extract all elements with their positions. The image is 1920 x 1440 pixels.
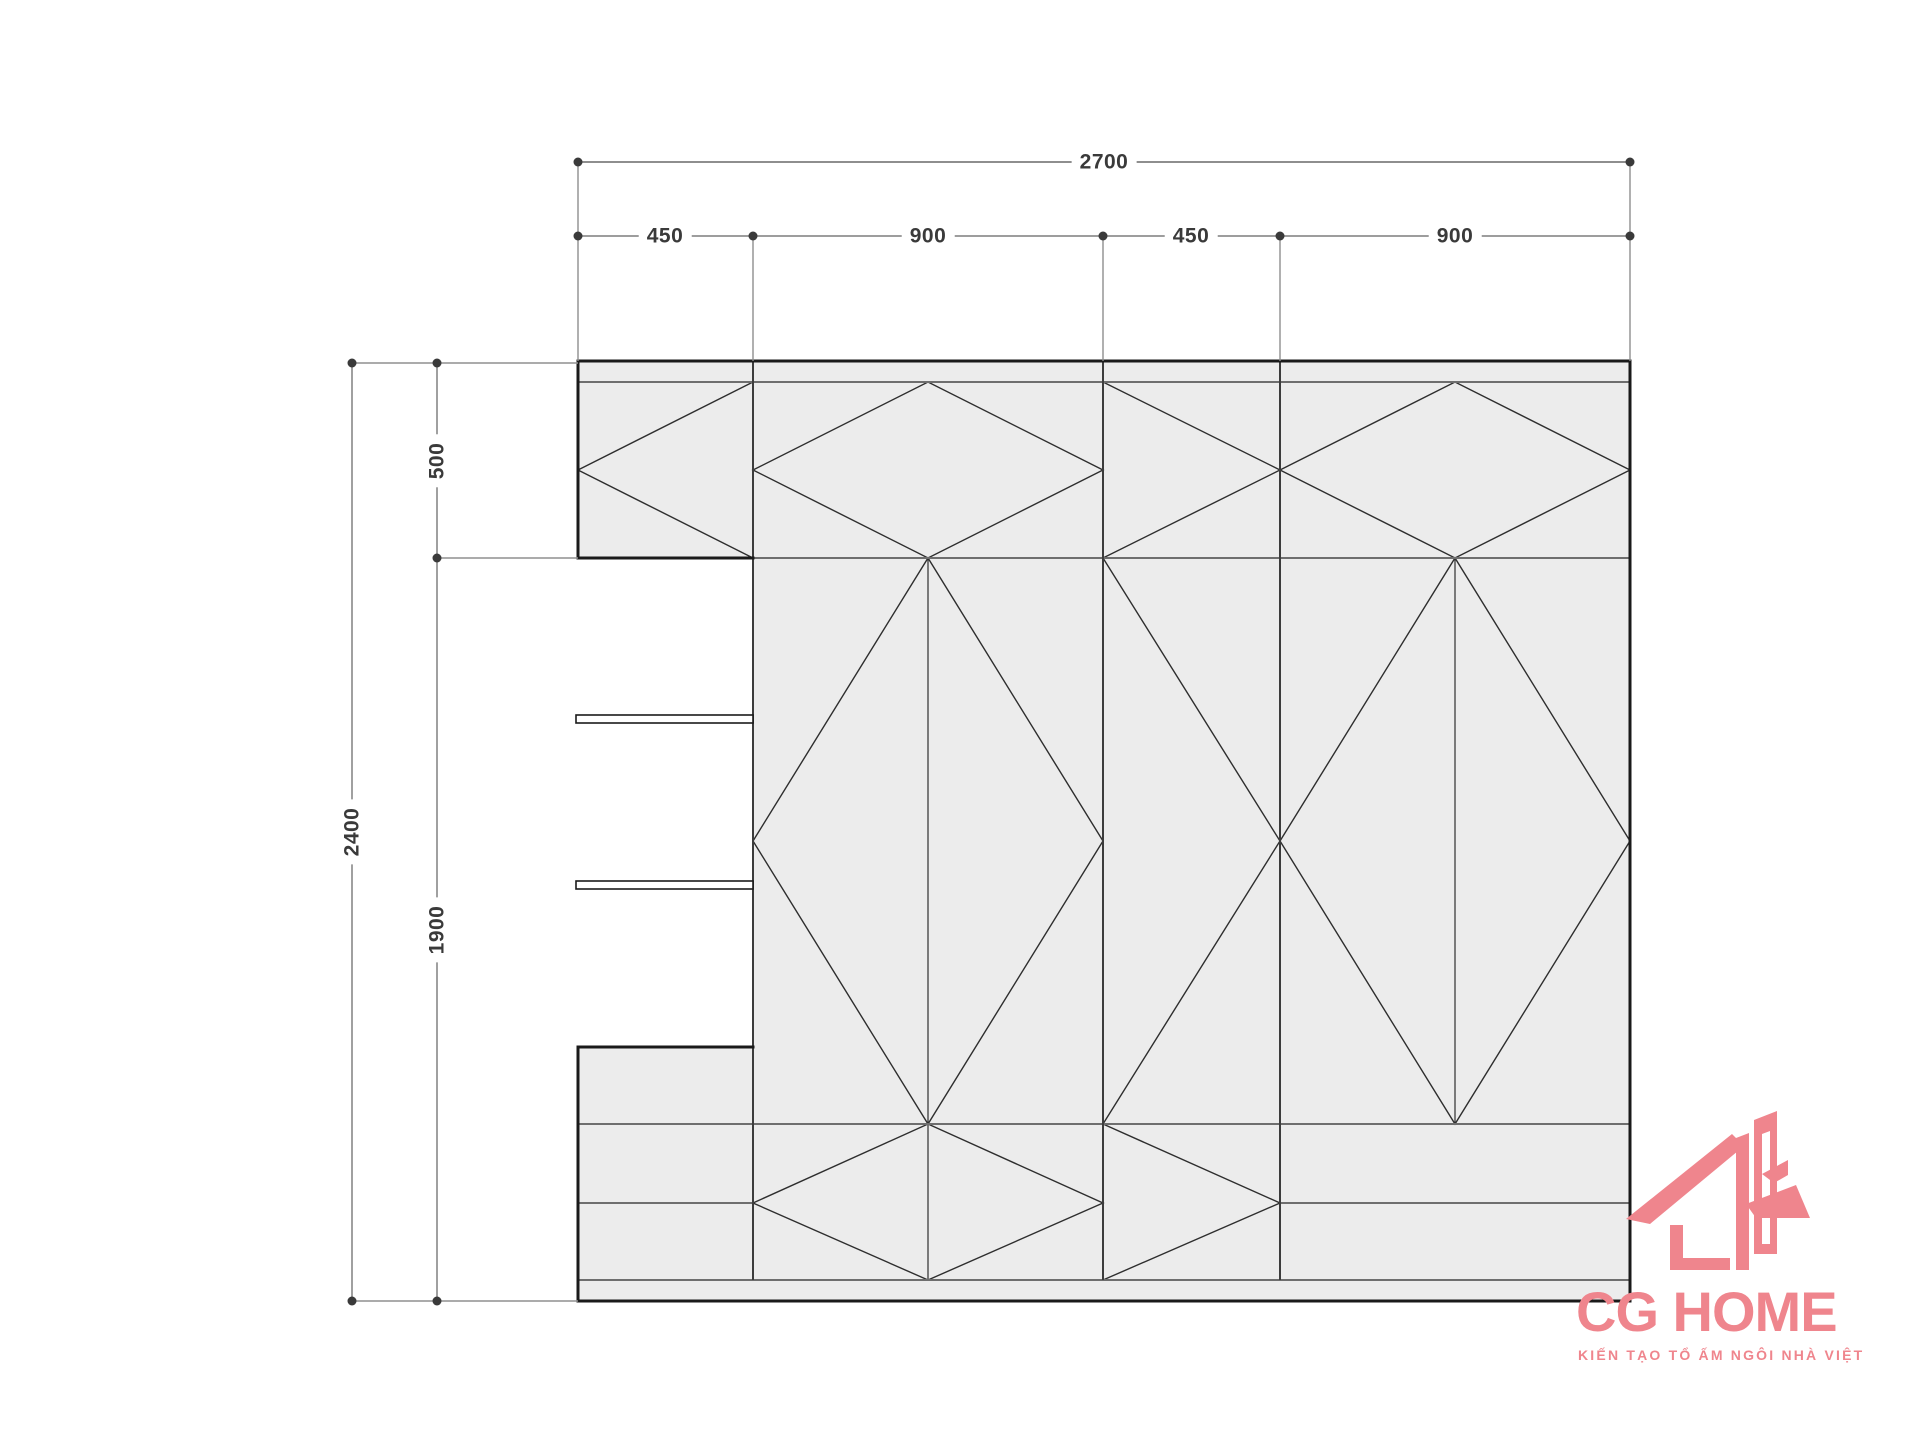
left-base-panel: [578, 1047, 753, 1124]
brand-logo: CG HOME KIẾN TẠO TỔ ẤM NGÔI NHÀ VIỆT: [1570, 1092, 1880, 1392]
dim-label-seg-900-a: 900: [902, 224, 955, 249]
tall-doors-panel: [753, 558, 1630, 1124]
dim-label-seg-450-b: 450: [1165, 224, 1218, 249]
dim-label-total-width: 2700: [1072, 150, 1137, 175]
shelf-upper: [576, 715, 753, 723]
dim-label-seg-500: 500: [425, 435, 450, 488]
dim-label-seg-900-b: 900: [1429, 224, 1482, 249]
logo-tagline: KIẾN TẠO TỔ ẤM NGÔI NHÀ VIỆT: [1578, 1348, 1864, 1362]
niche-shelves: [576, 715, 753, 889]
logo-wordmark: CG HOME: [1576, 1284, 1837, 1340]
dim-label-seg-450-a: 450: [639, 224, 692, 249]
drawing-canvas: 2700 450 900 450 900 2400 500 1900 CG HO…: [0, 0, 1920, 1440]
dim-label-total-height: 2400: [340, 800, 365, 865]
dim-label-seg-1900: 1900: [425, 898, 450, 963]
shelf-lower: [576, 881, 753, 889]
house-logo-icon: [1626, 1108, 1810, 1270]
